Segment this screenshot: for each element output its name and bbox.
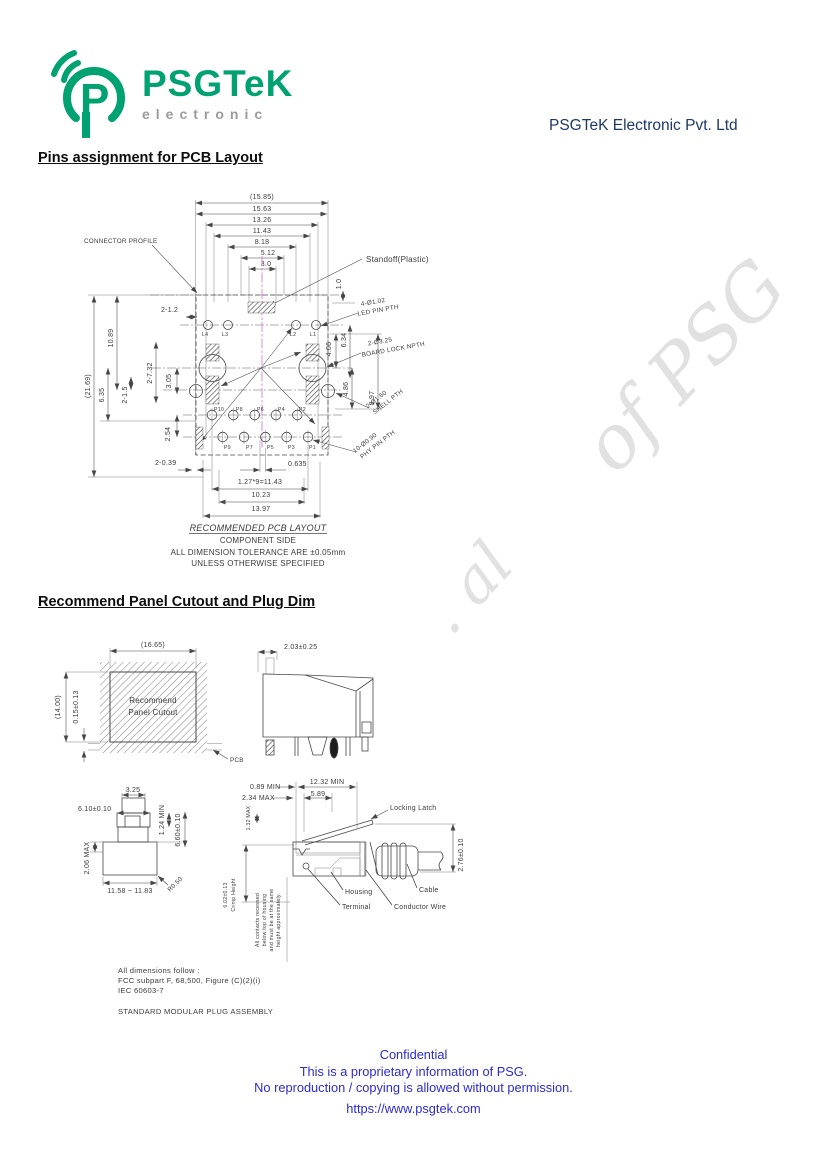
led-pin-label: L4	[202, 332, 208, 338]
no-reproduction-line: No reproduction / copying is allowed wit…	[0, 1080, 827, 1097]
pcb-caption: RECOMMENDED PCB LAYOUT COMPONENT SIDE AL…	[171, 523, 346, 568]
housing-label: Housing	[345, 889, 372, 896]
pcb-label: PCB	[230, 757, 244, 764]
cutout-label: Recommend	[129, 696, 177, 705]
dim-label: 0.89 MIN	[250, 784, 280, 791]
contacts-note: All contacts recessed below top of housi…	[255, 889, 282, 952]
dim-label: 1.32 MAX	[246, 805, 252, 830]
dim-label: (21.69)	[85, 374, 92, 398]
callouts: CONNECTOR PROFILE Standoff(Plastic) 4-Ø1…	[84, 238, 429, 462]
dim-label: 2.54	[165, 427, 172, 442]
dim-label: 2-7.32	[147, 362, 154, 383]
proprietary-line: This is a proprietary information of PSG…	[0, 1064, 827, 1081]
led-pin-label: L1	[310, 332, 316, 338]
plug-front-view-drawing: 3.25 6.10±0.10 1.24 MIN 6.60±0.10 2.06 M…	[78, 787, 185, 895]
dim-label: 10.23	[252, 492, 271, 499]
dim-label: 12.32 MIN	[310, 779, 345, 786]
locking-latch-outline	[302, 820, 373, 845]
panel-cutout-drawing: Recommend Panel Cutout (16.65) (14.00) 0…	[55, 642, 244, 764]
caption-line: ALL DIMENSION TOLERANCE ARE ±0.05mm	[171, 548, 346, 557]
standoff-label: Standoff(Plastic)	[366, 255, 429, 264]
board-lock-callout: 2-Ø3.25	[367, 336, 393, 347]
note-line: and must be at the same	[269, 889, 275, 952]
dim-label: 6.10±0.10	[78, 806, 111, 813]
jack-side-view-drawing: 2.03±0.25	[258, 644, 373, 758]
standards-notes: All dimensions follow : FCC subpart F, 6…	[118, 966, 273, 1017]
dim-label: 15.63	[253, 206, 272, 213]
conductor-wire-label: Conductor Wire	[394, 904, 446, 911]
note-line: below top of housing	[262, 894, 268, 947]
plug-side-view-drawing: 0.89 MIN 12.32 MIN 2.34 MAX 5.89 1.32 MA…	[223, 779, 465, 962]
hatched-features	[196, 302, 329, 449]
left-dimension-chain: (21.69) 10.89 6.35 2-1.5 2-7.32 3.05 2.5…	[85, 296, 211, 477]
phy-pin-label: P5	[267, 445, 274, 451]
website-link[interactable]: https://www.psgtek.com	[0, 1101, 827, 1118]
dim-label: 10.89	[108, 329, 115, 348]
jack-body-outline	[263, 674, 373, 737]
caption-line: UNLESS OTHERWISE SPECIFIED	[191, 559, 325, 568]
crimp-dim-label: Crimp Height	[231, 878, 237, 912]
radius-label: R0.50	[166, 876, 184, 894]
dim-label: 13.97	[252, 506, 271, 513]
confidential-label: Confidential	[0, 1047, 827, 1064]
note-line: All dimensions follow :	[118, 966, 273, 976]
confidentiality-footer: Confidential This is a proprietary infor…	[0, 1047, 827, 1117]
post-hatch	[266, 658, 274, 674]
note-line: height approximately.	[276, 893, 282, 947]
phy-pin-label: P10	[214, 407, 224, 413]
pcb-layout-drawing: (15.85) 15.63 13.26 11.43 8.18 5.12 3.0	[84, 194, 429, 568]
plug-body	[293, 842, 378, 876]
dim-label: 4.06	[326, 342, 333, 357]
cutout-label: Panel Cutout	[128, 708, 178, 717]
dim-label: 2.06 MAX	[84, 842, 91, 875]
dim-label: 3.05	[166, 374, 173, 389]
dim-label: 6.34	[341, 333, 348, 348]
dim-label: 2-1.2	[161, 307, 178, 314]
led-pin-label: L3	[222, 332, 228, 338]
dim-label: 11.58 ~ 11.83	[107, 888, 152, 895]
dim-label: 2.34 MAX	[242, 795, 275, 802]
dim-label: 5.12	[261, 250, 276, 257]
dim-label: (14.00)	[55, 695, 62, 719]
dim-label: 4.86	[343, 382, 350, 397]
crimp-dim-label: 6.02±0.13	[223, 882, 229, 907]
dim-label: 8.18	[255, 239, 270, 246]
phy-pin-label: P2	[299, 407, 306, 413]
dim-label: 2-1.5	[122, 386, 129, 403]
led-pin-label: L2	[290, 332, 296, 338]
dim-label: 5.89	[311, 791, 326, 798]
jack-pins	[266, 737, 368, 758]
note-line: All contacts recessed	[255, 893, 261, 947]
note-line: FCC subpart F, 68,500, Figure (C)(2)(i)	[118, 976, 273, 986]
dim-label: 1.0	[336, 279, 343, 289]
extension-lines	[88, 200, 382, 518]
phy-pin-label: P6	[257, 407, 264, 413]
dim-label: 1.24 MIN	[159, 805, 166, 835]
cable-boot	[376, 843, 443, 879]
assembly-standard-label: STANDARD MODULAR PLUG ASSEMBLY	[118, 1007, 273, 1017]
bottom-dimension-chain: 0.635 1.27*9=11.43 10.23 13.97	[203, 461, 320, 516]
caption-line: COMPONENT SIDE	[220, 536, 296, 545]
caption-title: RECOMMENDED PCB LAYOUT	[190, 523, 328, 533]
dim-label: 11.43	[253, 228, 271, 235]
dim-label: 2.76±0.10	[458, 838, 465, 871]
phy-pin-label: P8	[236, 407, 243, 413]
phy-pin-label: P3	[288, 445, 295, 451]
dim-label: (15.85)	[250, 194, 274, 201]
connector-profile-label: CONNECTOR PROFILE	[84, 238, 157, 245]
phy-pin-label: P1	[309, 445, 316, 451]
dim-label: 1.27*9=11.43	[238, 479, 282, 486]
dim-label: 2.03±0.25	[284, 644, 317, 651]
dim-label: 6.60±0.10	[175, 813, 182, 846]
cable-label: Cable	[419, 887, 439, 894]
locking-latch-label: Locking Latch	[390, 805, 436, 812]
dim-label: 3.25	[126, 787, 141, 794]
phy-pin-label: P7	[246, 445, 253, 451]
dim-label: 13.26	[253, 217, 272, 224]
connector-profile-outline	[150, 256, 352, 455]
dim-label: 2-0.39	[155, 460, 176, 467]
dim-label: 6.35	[99, 388, 106, 403]
dim-label: 0.15±0.13	[73, 690, 80, 723]
dim-label: 0.635	[288, 461, 307, 468]
phy-pin-label: P4	[278, 407, 285, 413]
phy-pin-label: P9	[224, 445, 231, 451]
dim-label: (16.65)	[141, 642, 165, 649]
note-line: IEC 60603-7	[118, 986, 273, 996]
terminal-label: Terminal	[342, 904, 371, 911]
